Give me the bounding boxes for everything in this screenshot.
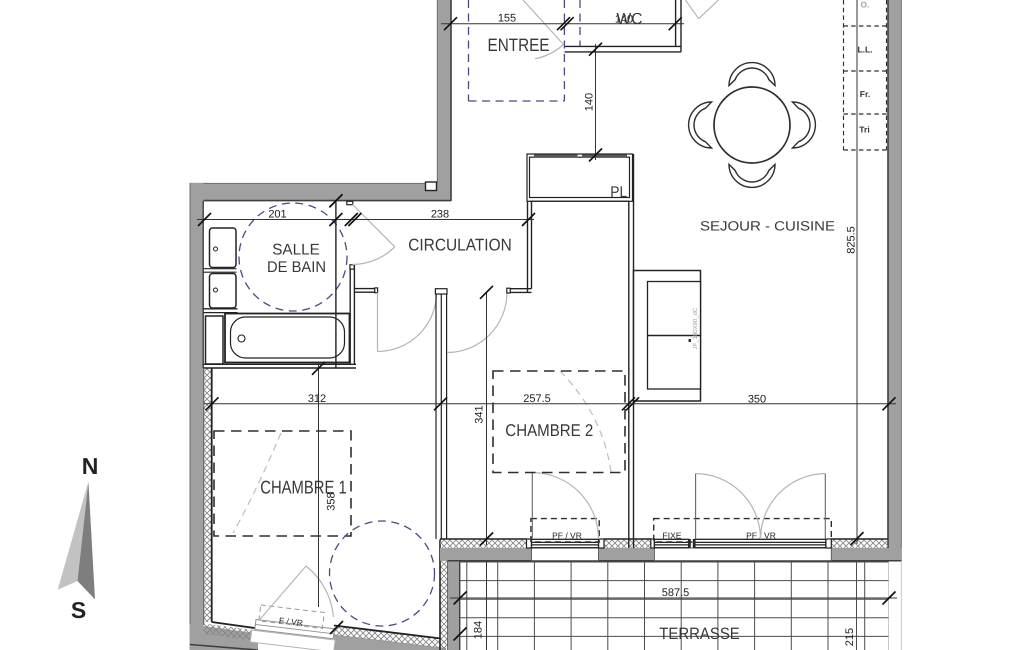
- svg-text:O.: O.: [861, 0, 870, 10]
- svg-text:238: 238: [431, 209, 449, 221]
- svg-text:341: 341: [474, 405, 486, 423]
- svg-text:257.5: 257.5: [523, 393, 551, 405]
- svg-text:350: 350: [748, 393, 766, 405]
- svg-text:155: 155: [498, 13, 516, 25]
- svg-text:SEJOUR - CUISINE: SEJOUR - CUISINE: [700, 219, 835, 234]
- svg-text:JF_180X90_dC: JF_180X90_dC: [692, 307, 699, 349]
- svg-text:L.L.: L.L.: [857, 45, 872, 55]
- svg-text:N: N: [82, 453, 99, 479]
- svg-text:201: 201: [268, 209, 286, 221]
- svg-text:825.5: 825.5: [846, 226, 858, 254]
- svg-text:SALLE: SALLE: [272, 242, 320, 259]
- svg-text:140: 140: [584, 93, 596, 111]
- svg-text:184: 184: [473, 621, 485, 639]
- svg-text:215: 215: [844, 628, 856, 646]
- svg-text:Fr.: Fr.: [860, 89, 870, 99]
- svg-text:FIXE: FIXE: [663, 531, 682, 541]
- svg-text:WC: WC: [617, 11, 643, 28]
- svg-text:CIRCULATION: CIRCULATION: [408, 236, 512, 255]
- svg-text:PF / VR: PF / VR: [552, 531, 582, 541]
- svg-text:DE BAIN: DE BAIN: [267, 259, 326, 276]
- svg-text:CHAMBRE 2: CHAMBRE 2: [505, 421, 593, 440]
- svg-text:587.5: 587.5: [662, 587, 690, 599]
- svg-text:358: 358: [326, 492, 338, 510]
- svg-text:ENTREE: ENTREE: [488, 35, 550, 55]
- svg-text:Tri: Tri: [859, 125, 869, 135]
- svg-text:TERRASSE: TERRASSE: [659, 625, 740, 643]
- svg-text:312: 312: [308, 393, 326, 405]
- svg-text:S: S: [71, 597, 86, 623]
- svg-text:PL: PL: [610, 184, 627, 201]
